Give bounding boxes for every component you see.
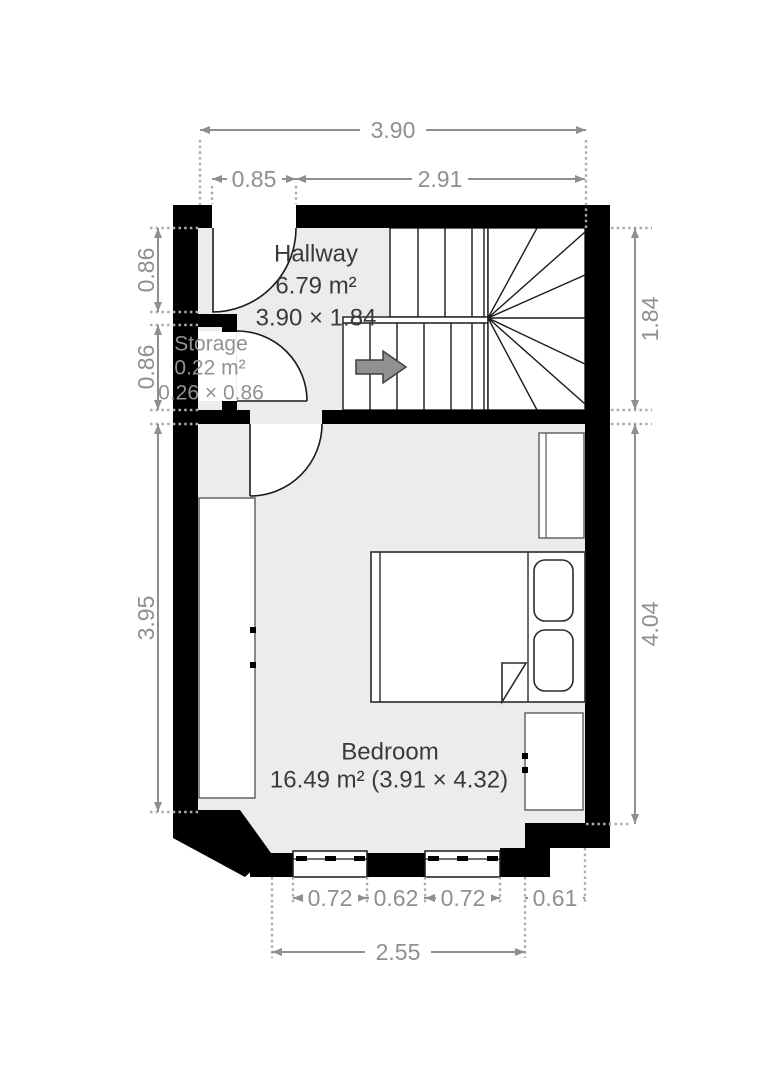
dim-label-storage-height-left: 0.86 (133, 345, 159, 390)
storage-name: Storage (174, 332, 248, 355)
floor-plan-page: 3.90 0.85 2.91 0.86 0.86 3.95 1.84 4.04 … (0, 0, 781, 1080)
dim-label-windows-total: 2.55 (376, 939, 421, 965)
stair-winder (488, 228, 585, 410)
bed (371, 552, 585, 702)
storage-area: 0.22 m² (174, 356, 245, 379)
wardrobe-left (199, 498, 255, 798)
hallway-bedroom-wall-right (322, 410, 585, 424)
stair-upper-flight (390, 228, 488, 317)
wardrobe-left-handle (250, 662, 256, 668)
bottom-right-wall (525, 823, 610, 848)
window-sash-mark (428, 856, 439, 861)
floor-plan-svg: 3.90 0.85 2.91 0.86 0.86 3.95 1.84 4.04 … (0, 0, 781, 1080)
dim-label-entry-offset: 0.85 (232, 166, 277, 192)
window-sash-mark (325, 856, 336, 861)
window-2 (425, 851, 500, 877)
right-wall (585, 205, 610, 848)
wardrobe-bottom-right (525, 713, 583, 810)
window-sash-mark (354, 856, 365, 861)
window-1 (293, 851, 367, 877)
dim-label-nook: 0.61 (533, 885, 578, 911)
wardrobe-bottom-right-handle (522, 767, 528, 773)
wardrobe-left-handle (250, 627, 256, 633)
bedroom-name: Bedroom (341, 738, 438, 765)
storage-jamb-top (222, 326, 237, 332)
window-sash-mark (296, 856, 307, 861)
hallway-name: Hallway (274, 240, 358, 267)
window-sash-mark (457, 856, 468, 861)
wardrobe-bottom-right-handle (522, 753, 528, 759)
dim-label-stair-width: 2.91 (418, 166, 463, 192)
window-sash-mark (487, 856, 498, 861)
pillow (534, 630, 573, 691)
dim-label-window1: 0.72 (308, 885, 353, 911)
hallway-area: 6.79 m² (275, 272, 356, 299)
bedroom-area-dimensions: 16.49 m² (3.91 × 4.32) (270, 766, 508, 793)
hallway-dimensions: 3.90 × 1.84 (256, 304, 377, 331)
left-wall (173, 205, 198, 838)
dim-label-hallway-depth-right: 1.84 (637, 296, 663, 341)
hallway-bedroom-wall-left (198, 410, 250, 424)
dim-label-window2: 0.72 (441, 885, 486, 911)
dim-label-window-gap: 0.62 (374, 885, 419, 911)
storage-dimensions: 0.26 × 0.86 (158, 381, 264, 404)
dim-label-bedroom-depth-right: 4.04 (637, 601, 663, 646)
dim-label-overall-width: 3.90 (371, 117, 416, 143)
dim-label-hallway-height-left: 0.86 (133, 248, 159, 293)
dim-label-bedroom-height-left: 3.95 (133, 596, 159, 641)
storage-wall-stub-top (197, 314, 237, 327)
pillow (534, 560, 573, 621)
bottom-wall-step (500, 848, 550, 854)
entry-door-opening (212, 205, 296, 228)
